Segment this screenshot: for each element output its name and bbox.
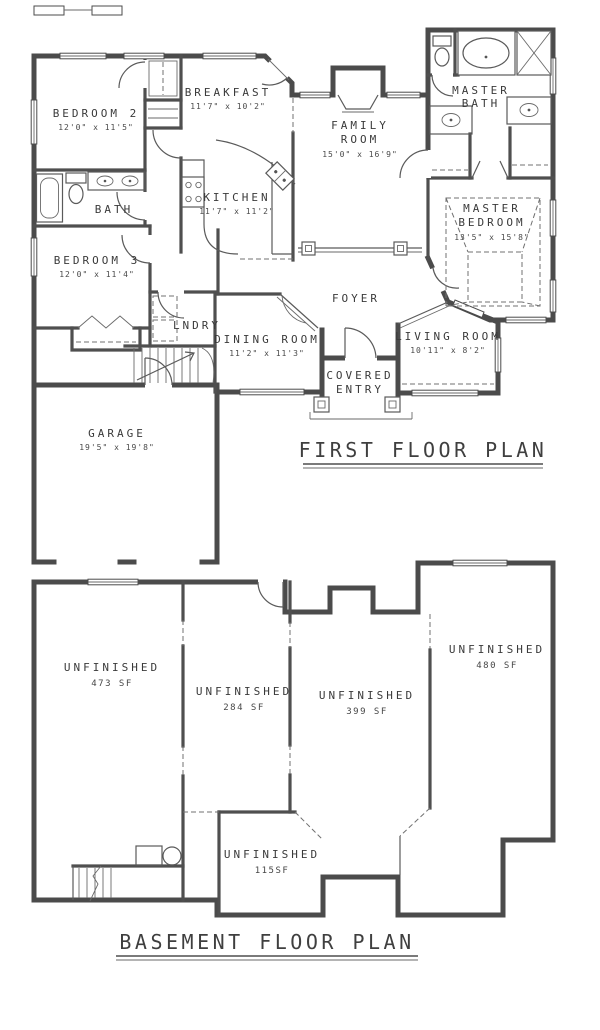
- area-sf-480: 480 SF: [476, 661, 518, 671]
- window: [240, 389, 304, 395]
- window: [124, 53, 164, 59]
- area-label-473: UNFINISHED: [64, 661, 160, 674]
- room-dims-living-room: 10'11" x 8'2": [410, 346, 486, 355]
- range-icon: [182, 177, 204, 207]
- window: [31, 100, 37, 144]
- area-sf-115: 115SF: [255, 866, 290, 876]
- basement-doors: [258, 579, 283, 607]
- furnace-icon: [136, 846, 162, 865]
- room-dims-bedroom-2: 12'0" x 11'5": [58, 123, 134, 132]
- floor-plan-sheet: BEDROOM 2 12'0" x 11'5" BREAKFAST 11'7" …: [0, 0, 600, 1030]
- door-hall-kitchen: [153, 130, 181, 158]
- stairs-up: [134, 348, 214, 383]
- area-sf-399: 399 SF: [346, 707, 388, 717]
- kitchen-corner-sink-icon: [266, 162, 294, 190]
- basement-stairs: [79, 866, 111, 901]
- basement-exterior-walls: [34, 563, 553, 915]
- area-label-284: UNFINISHED: [196, 685, 292, 698]
- room-label-family-room-2: ROOM: [341, 133, 380, 146]
- first-floor-title-text: FIRST FLOOR PLAN: [299, 438, 548, 462]
- area-label-399: UNFINISHED: [319, 689, 415, 702]
- window: [387, 92, 420, 98]
- area-sf-473: 473 SF: [91, 679, 133, 689]
- room-label-dining-room: DINING ROOM: [214, 333, 320, 346]
- archway-opening: [398, 302, 449, 328]
- window: [203, 53, 256, 59]
- room-label-breakfast: BREAKFAST: [185, 86, 272, 99]
- window: [506, 317, 546, 323]
- room-label-bath: BATH: [95, 203, 134, 216]
- door-bedroom2: [119, 60, 148, 88]
- room-dims-master-bedroom: 13'5" x 15'8": [454, 233, 530, 242]
- room-label-garage: GARAGE: [88, 427, 146, 440]
- door-front-entry: [345, 328, 377, 361]
- area-label-480: UNFINISHED: [449, 643, 545, 656]
- vanity-double-sink-icon: [88, 172, 145, 190]
- room-label-master-bath-2: BATH: [462, 97, 501, 110]
- foyer-railing: [298, 242, 422, 255]
- door-garage: [145, 358, 172, 388]
- room-dims-breakfast: 11'7" x 10'2": [190, 102, 266, 111]
- room-dims-bedroom-3: 12'0" x 11'4": [59, 270, 135, 279]
- window: [88, 579, 138, 585]
- first-floor-plan: BEDROOM 2 12'0" x 11'5" BREAKFAST 11'7" …: [31, 6, 556, 562]
- bifold-closet-doors: [78, 316, 134, 328]
- window: [412, 390, 478, 396]
- door-master-suite: [400, 150, 431, 178]
- basement-title-text: BASEMENT FLOOR PLAN: [119, 930, 414, 954]
- closet-shelves: [148, 61, 178, 118]
- room-label-foyer: FOYER: [332, 292, 380, 305]
- master-vanity-left-icon: [430, 106, 472, 134]
- room-dims-dining-room: 11'2" x 11'3": [229, 349, 305, 358]
- room-label-master-bedroom-2: BEDROOM: [458, 216, 525, 229]
- room-label-kitchen: KITCHEN: [203, 191, 270, 204]
- basement-labels: UNFINISHED 473 SF UNFINISHED 284 SF UNFI…: [64, 643, 545, 876]
- basement-fixtures: [79, 846, 181, 901]
- master-tub-icon: [458, 31, 515, 75]
- window: [550, 280, 556, 312]
- room-label-living-room: LIVING ROOM: [395, 330, 501, 343]
- toilet-icon: [66, 173, 86, 204]
- floor-plan-drawing: BEDROOM 2 12'0" x 11'5" BREAKFAST 11'7" …: [0, 0, 600, 1030]
- entry-stoop: [310, 412, 412, 419]
- fireplace-icon: [338, 95, 378, 112]
- master-toilet-icon: [433, 36, 451, 66]
- room-label-family-room-1: FAMILY: [331, 119, 389, 132]
- water-heater-icon: [163, 847, 181, 865]
- window: [550, 200, 556, 236]
- area-sf-284: 284 SF: [223, 703, 265, 713]
- basement-title: BASEMENT FLOOR PLAN: [116, 930, 418, 960]
- door-basement-entry: [258, 579, 283, 607]
- shower-icon: [517, 31, 551, 75]
- room-label-bedroom-2: BEDROOM 2: [53, 107, 140, 120]
- room-label-covered-entry-1: COVERED: [326, 369, 393, 382]
- first-floor-labels: BEDROOM 2 12'0" x 11'5" BREAKFAST 11'7" …: [53, 84, 530, 452]
- room-label-laundry: LNDRY: [173, 319, 221, 332]
- opening-dining-arc: [282, 296, 306, 323]
- closet-double-doors: [472, 161, 508, 178]
- room-dims-family-room: 15'0" x 16'9": [322, 150, 398, 159]
- master-vanity-right-icon: [507, 97, 551, 124]
- window: [31, 238, 37, 276]
- room-label-master-bedroom-1: MASTER: [463, 202, 521, 215]
- room-label-covered-entry-2: ENTRY: [336, 383, 384, 396]
- entry-columns: [310, 397, 412, 419]
- basement-floor-plan: UNFINISHED 473 SF UNFINISHED 284 SF UNFI…: [34, 560, 553, 960]
- door-laundry: [158, 289, 184, 318]
- room-label-bedroom-3: BEDROOM 3: [54, 254, 141, 267]
- room-dims-garage: 19'5" x 19'8": [79, 443, 155, 452]
- window: [60, 53, 106, 59]
- door-toilet-room: [432, 72, 453, 96]
- bathtub-icon: [37, 174, 63, 222]
- area-label-115: UNFINISHED: [224, 848, 320, 861]
- window: [300, 92, 330, 98]
- deck-edge-top: [34, 6, 122, 15]
- door-breakfast-patio: [262, 59, 289, 85]
- first-floor-title: FIRST FLOOR PLAN: [299, 438, 548, 468]
- room-dims-kitchen: 11'7" x 11'2": [199, 207, 275, 216]
- basement-interior-walls: [73, 582, 430, 915]
- window: [495, 338, 501, 372]
- window: [453, 560, 507, 566]
- room-label-master-bath-1: MASTER: [452, 84, 510, 97]
